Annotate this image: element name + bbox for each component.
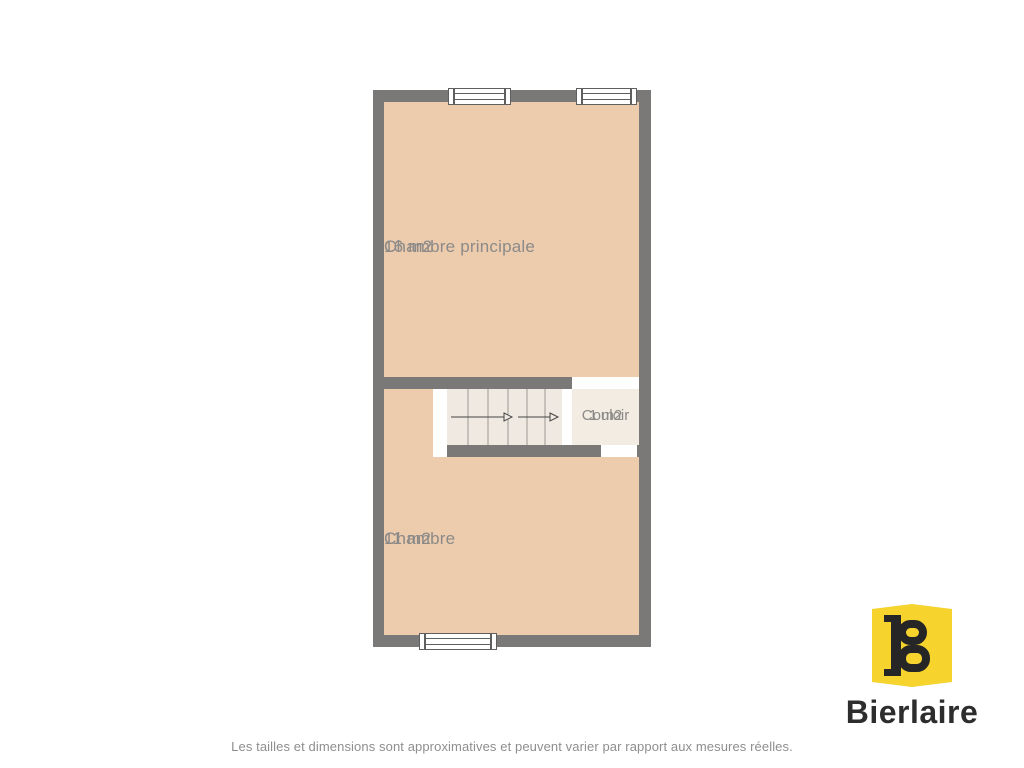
logo-banner-icon: [872, 604, 952, 687]
brand-logo: Bierlaire: [845, 604, 979, 729]
floor-plan: Couloir 1 m2 Chambre principale 16 m2 Ch…: [373, 90, 651, 647]
master-bedroom-area: 16 m2: [384, 235, 432, 258]
stairs-left-opening: [433, 389, 447, 457]
corridor-bottom-opening: [601, 445, 637, 457]
stairs-right-opening: [562, 389, 572, 445]
brand-name: Bierlaire: [845, 695, 979, 729]
stairs-icon: [447, 389, 562, 445]
window-bottom-icon: [419, 633, 497, 650]
wall-stub: [637, 445, 639, 457]
bedroom-area: 11 m2: [384, 527, 431, 550]
window-top-left-icon: [448, 88, 511, 105]
room-corridor: Couloir 1 m2: [572, 389, 639, 445]
corridor-area: 1 m2: [589, 406, 622, 425]
corridor-top-opening: [572, 377, 639, 389]
stairs-bottom-wall: [447, 445, 601, 457]
window-top-right-icon: [576, 88, 637, 105]
disclaimer-text: Les tailles et dimensions sont approxima…: [0, 739, 1024, 754]
